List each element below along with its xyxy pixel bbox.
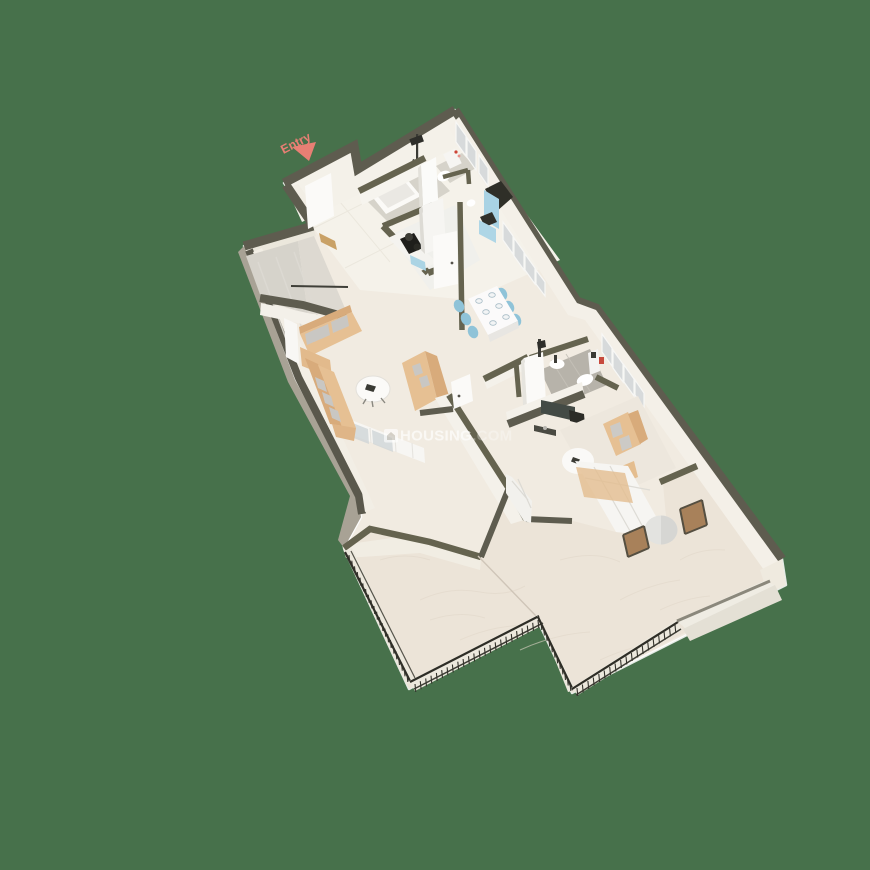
svg-text:HOUSING.COM: HOUSING.COM xyxy=(400,428,512,445)
